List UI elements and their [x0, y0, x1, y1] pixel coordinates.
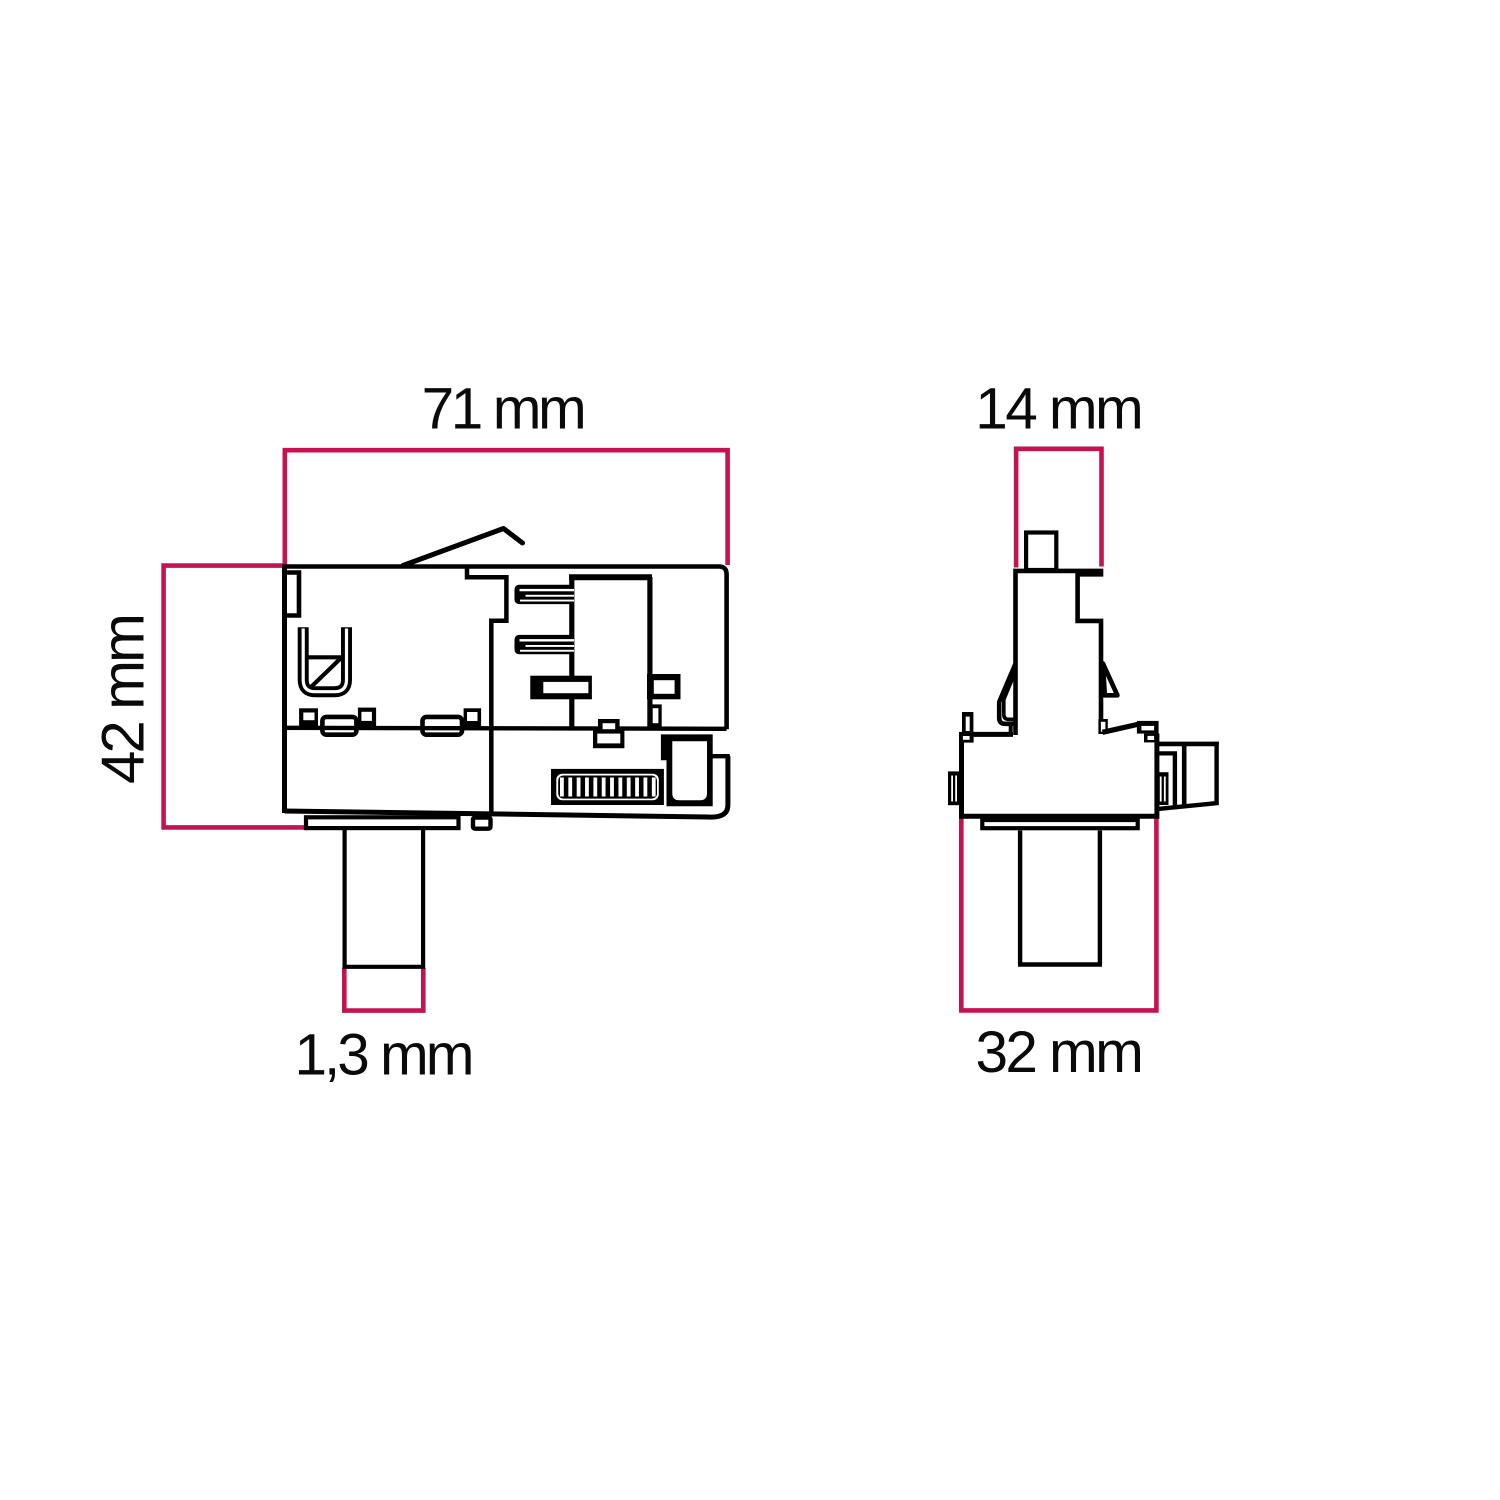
svg-text:71 mm: 71 mm [422, 377, 584, 442]
svg-text:32 mm: 32 mm [976, 1020, 1142, 1085]
svg-text:14 mm: 14 mm [975, 376, 1141, 441]
svg-text:1,3 mm: 1,3 mm [294, 1023, 471, 1088]
svg-text:42 mm: 42 mm [90, 616, 157, 784]
